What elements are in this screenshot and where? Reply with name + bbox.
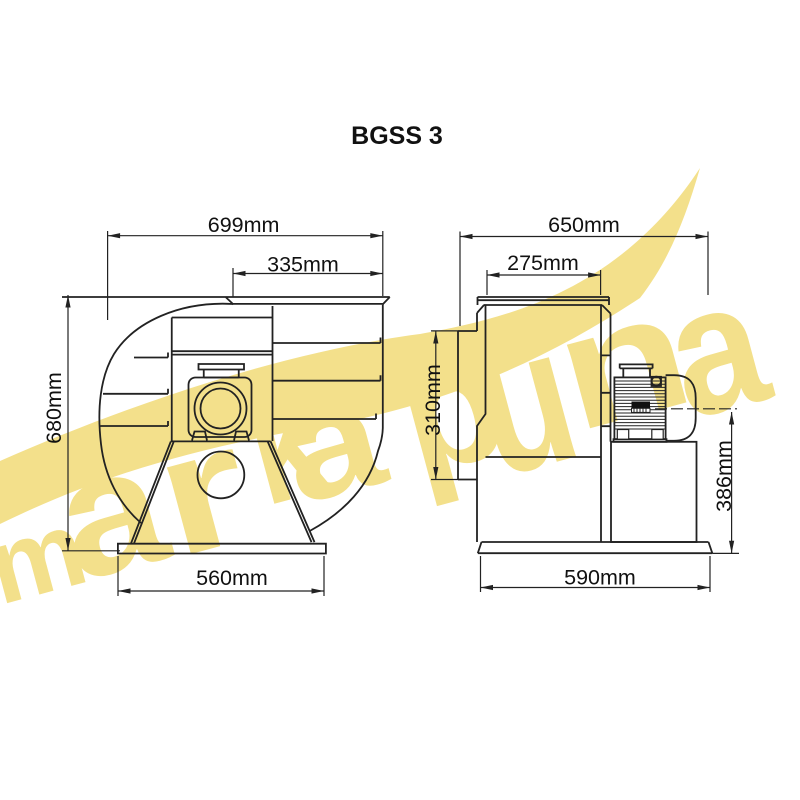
svg-text:560mm: 560mm (196, 566, 268, 590)
svg-text:BGSS 3: BGSS 3 (351, 122, 443, 150)
svg-text:680mm: 680mm (42, 372, 66, 444)
svg-text:310mm: 310mm (421, 364, 445, 436)
svg-text:699mm: 699mm (208, 213, 280, 237)
svg-text:590mm: 590mm (564, 566, 636, 590)
svg-text:335mm: 335mm (267, 253, 339, 277)
svg-text:275mm: 275mm (507, 251, 579, 275)
svg-text:386mm: 386mm (712, 440, 736, 512)
svg-text:650mm: 650mm (548, 213, 620, 237)
